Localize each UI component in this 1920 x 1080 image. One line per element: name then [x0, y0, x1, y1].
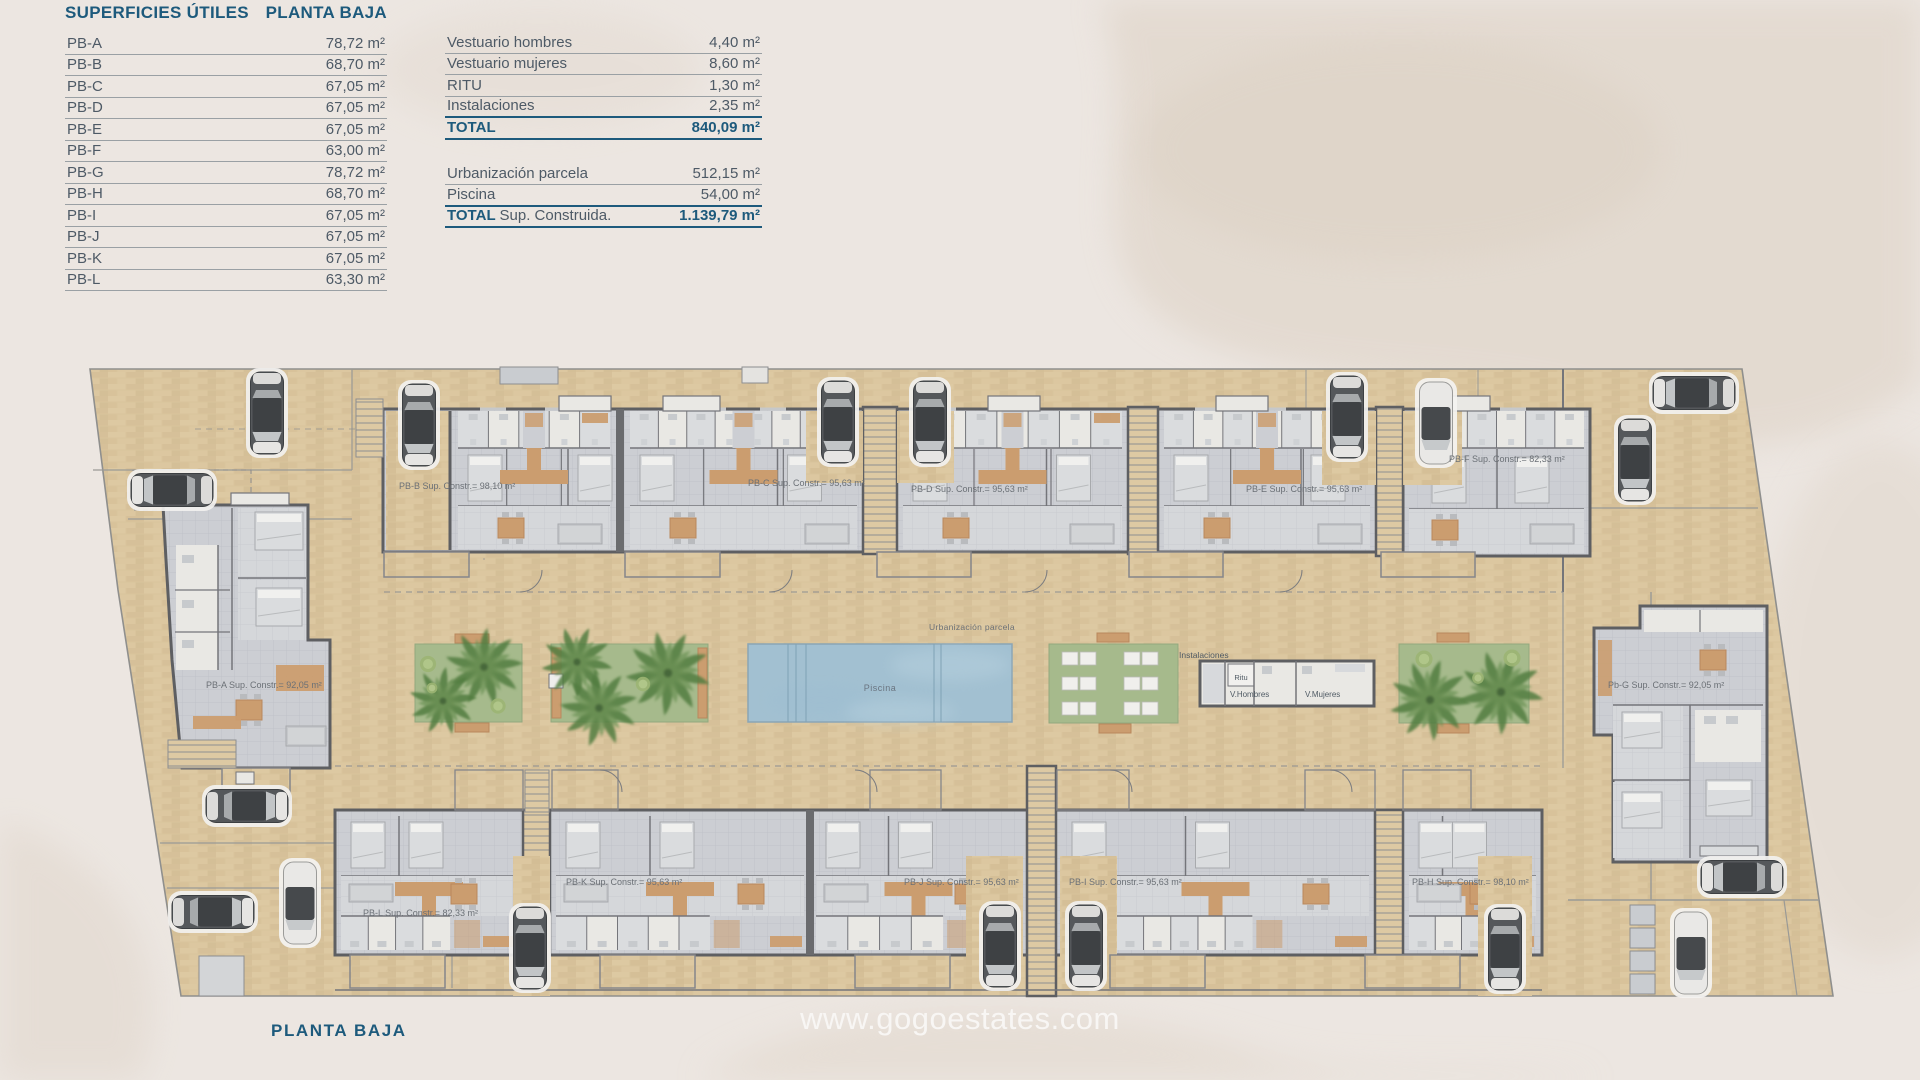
svg-text:PB-E Sup. Constr.= 95,63 m²: PB-E Sup. Constr.= 95,63 m²	[1246, 484, 1362, 494]
svg-text:PB-D Sup. Constr.= 95,63 m²: PB-D Sup. Constr.= 95,63 m²	[911, 484, 1028, 494]
svg-text:PB-L Sup. Constr.= 82,33 m²: PB-L Sup. Constr.= 82,33 m²	[363, 908, 478, 918]
svg-text:Ritu: Ritu	[1234, 673, 1247, 682]
svg-text:PB-A Sup. Constr.= 92,05 m²: PB-A Sup. Constr.= 92,05 m²	[206, 680, 322, 690]
svg-text:Instalaciones: Instalaciones	[1179, 650, 1229, 660]
svg-text:PB-B Sup. Constr.= 98,10 m²: PB-B Sup. Constr.= 98,10 m²	[399, 481, 515, 491]
svg-text:PB-K Sup. Constr.= 95,63 m²: PB-K Sup. Constr.= 95,63 m²	[566, 877, 682, 887]
svg-text:V.Hombres: V.Hombres	[1230, 690, 1269, 699]
svg-text:PB-F Sup. Constr.= 82,33 m²: PB-F Sup. Constr.= 82,33 m²	[1449, 454, 1565, 464]
svg-text:Piscina: Piscina	[864, 683, 897, 693]
svg-text:Pb-G Sup. Constr.= 92,05 m²: Pb-G Sup. Constr.= 92,05 m²	[1608, 680, 1724, 690]
svg-text:Urbanización parcela: Urbanización parcela	[929, 622, 1015, 632]
svg-text:PB-C Sup. Constr.= 95,63 m²: PB-C Sup. Constr.= 95,63 m²	[748, 478, 865, 488]
svg-text:www.gogoestates.com: www.gogoestates.com	[799, 1001, 1120, 1036]
svg-text:PB-H Sup. Constr.= 98,10 m²: PB-H Sup. Constr.= 98,10 m²	[1412, 877, 1529, 887]
svg-text:PB-J Sup. Constr.= 95,63 m²: PB-J Sup. Constr.= 95,63 m²	[904, 877, 1019, 887]
svg-text:PB-I Sup. Constr.= 95,63 m²: PB-I Sup. Constr.= 95,63 m²	[1069, 877, 1182, 887]
svg-text:V.Mujeres: V.Mujeres	[1305, 690, 1340, 699]
